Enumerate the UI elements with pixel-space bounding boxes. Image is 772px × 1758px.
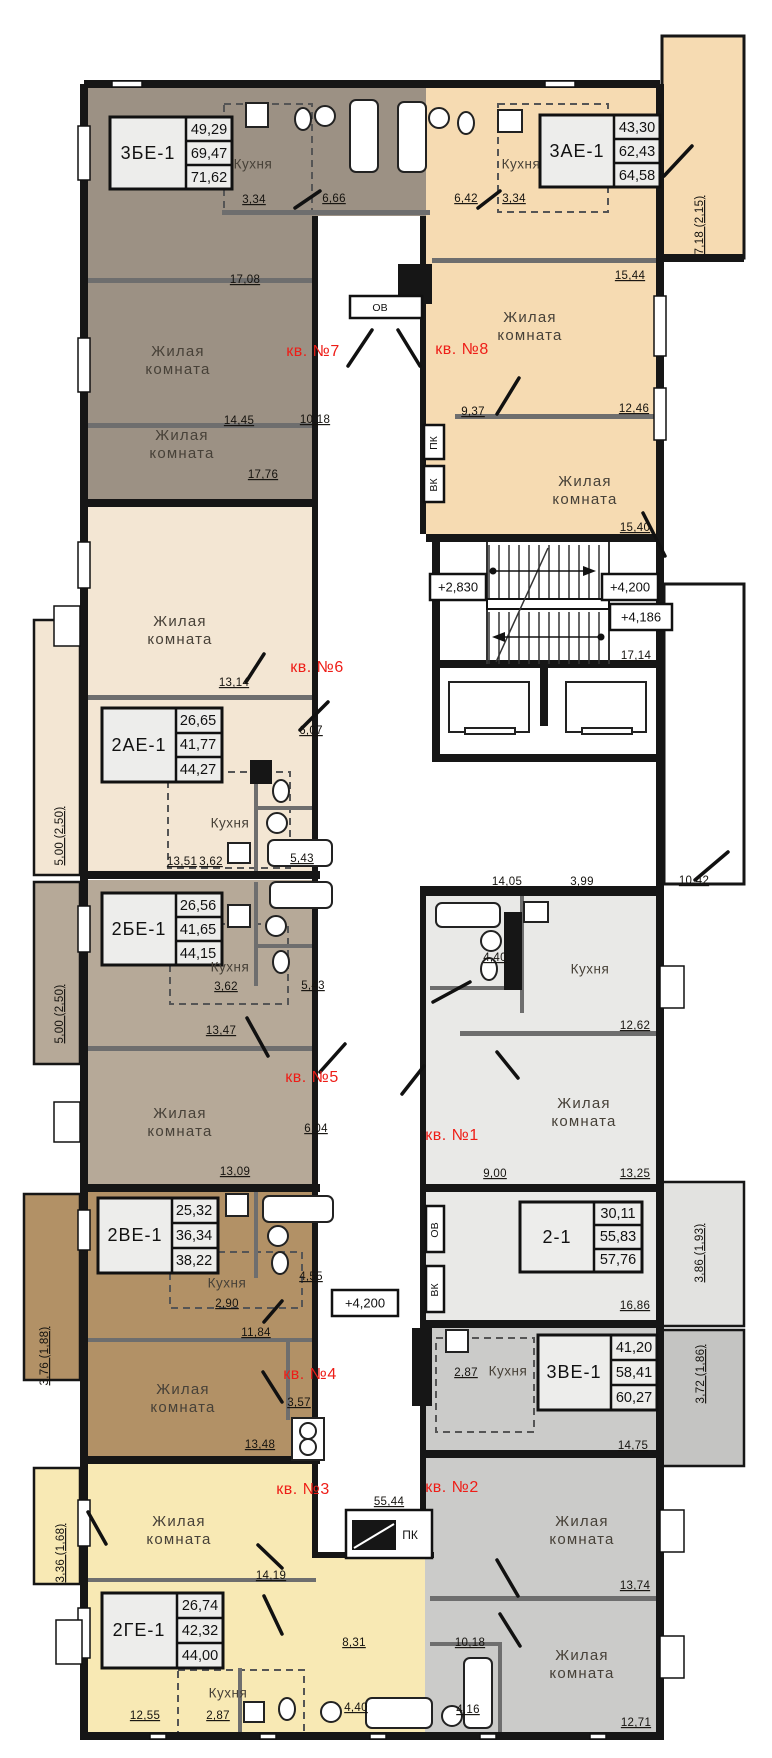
dim: 9,00	[483, 1168, 507, 1180]
room-label-living: комната	[146, 1531, 211, 1548]
unit-area-living: 30,11	[600, 1206, 635, 1222]
room-label-living: комната	[552, 491, 617, 508]
bathtub	[366, 1698, 432, 1728]
floor-plan: 3БЕ-1 49,29 69,47 71,62 3АЕ-1 43,30 62,4…	[0, 0, 772, 1758]
dim: 12,62	[620, 1020, 650, 1032]
elevator-cabin-right	[566, 682, 646, 732]
unit-area-usable: 41,77	[180, 737, 216, 753]
sink	[481, 931, 501, 951]
shaft-ov-top: ОВ	[372, 302, 387, 314]
unit-area-usable: 69,47	[191, 146, 227, 162]
room-label-living: Жилая	[153, 1105, 206, 1122]
dim: 8,31	[342, 1637, 366, 1649]
room-label-living: Жилая	[153, 613, 206, 630]
kitchen-sink	[228, 843, 250, 863]
unit-area-usable: 58,41	[616, 1365, 652, 1381]
kitchen-sink	[246, 103, 268, 127]
dim: 17,08	[230, 274, 260, 286]
dim: 2,90	[215, 1298, 239, 1310]
room-label-kitchen: Кухня	[211, 960, 250, 975]
dim: 10,18	[455, 1637, 485, 1649]
dim: 3,57	[287, 1397, 311, 1409]
dim: 12,55	[130, 1710, 160, 1722]
room-label-living: комната	[145, 361, 210, 378]
bathtub	[270, 882, 332, 908]
bathtub	[436, 903, 500, 927]
room-label-living: Жилая	[151, 343, 204, 360]
window-bay	[54, 606, 80, 646]
elevation-stair-low: +2,830	[438, 579, 478, 594]
dim: 13,74	[620, 1580, 651, 1592]
unit-area-living: 26,65	[180, 713, 216, 729]
toilet	[272, 1252, 288, 1274]
window	[654, 296, 666, 356]
unit-code: 2ГЕ-1	[113, 1620, 166, 1640]
sink	[321, 1702, 341, 1722]
unit-area-total: 44,27	[180, 762, 216, 778]
unit-area-total: 60,27	[616, 1390, 652, 1406]
window	[112, 81, 142, 87]
unit-code: 2БЕ-1	[112, 919, 167, 939]
unit-area-living: 26,56	[180, 898, 216, 914]
dim: 17,76	[248, 469, 278, 481]
flat-number-2: кв. №2	[425, 1479, 478, 1496]
floor-plan-drawing: 3БЕ-1 49,29 69,47 71,62 3АЕ-1 43,30 62,4…	[0, 0, 772, 1758]
flat-number-1: кв. №1	[425, 1127, 478, 1144]
dim: 2,87	[206, 1710, 230, 1722]
dim: 13,47	[206, 1025, 236, 1037]
unit-code: 3ВЕ-1	[546, 1362, 601, 1382]
unit-box-2-1: 2-1 30,11 55,83 57,76	[520, 1202, 642, 1272]
sink	[268, 1226, 288, 1246]
dim: 3,62	[214, 981, 238, 993]
room-label-living: комната	[551, 1113, 616, 1130]
dim: 4,55	[299, 1271, 323, 1283]
room-label-kitchen: Кухня	[211, 816, 250, 831]
room-label-kitchen: Кухня	[209, 1686, 248, 1701]
bathtub	[464, 1658, 492, 1728]
room-label-living: Жилая	[557, 1095, 610, 1112]
dim: 6,04	[304, 1123, 328, 1135]
unit-area-living: 43,30	[619, 120, 655, 136]
unit-box-2ve-1: 2ВЕ-1 25,32 36,34 38,22	[98, 1198, 218, 1273]
window	[78, 542, 90, 588]
dim: 13,14	[219, 677, 250, 689]
dim: 5,43	[290, 853, 314, 865]
dim: 3,36 (1,68)	[55, 1524, 67, 1583]
elevation-stair-high: +4,200	[610, 579, 650, 594]
kitchen-sink	[446, 1330, 468, 1352]
window	[78, 1210, 90, 1250]
flat-number-5: кв. №5	[285, 1069, 338, 1086]
window	[78, 338, 90, 392]
dim: 14,05	[492, 876, 522, 888]
dim: 13,25	[620, 1168, 650, 1180]
room-label-living: Жилая	[155, 427, 208, 444]
shaft-pk: ПК	[428, 435, 440, 450]
bathtub	[398, 102, 426, 172]
toilet	[273, 951, 289, 973]
window-bay	[660, 966, 684, 1008]
room-label-kitchen: Кухня	[571, 962, 610, 977]
flat-number-4: кв. №4	[283, 1366, 336, 1383]
dim: 13,48	[245, 1439, 275, 1451]
room-label-living: Жилая	[156, 1381, 209, 1398]
kitchen-sink	[498, 110, 522, 132]
bathtub	[263, 1196, 333, 1222]
dim: 12,71	[621, 1717, 651, 1729]
unit-code: 2-1	[542, 1227, 571, 1247]
dim: 3,72 (1,86)	[695, 1345, 707, 1404]
room-label-living: Жилая	[503, 309, 556, 326]
toilet	[295, 108, 311, 130]
room-label-living: Жилая	[555, 1647, 608, 1664]
dim: 6,42	[454, 193, 478, 205]
dim: 4,40	[344, 1702, 368, 1714]
dim: 13,09	[220, 1166, 250, 1178]
unit-box-2be-1: 2БЕ-1 26,56 41,65 44,15	[102, 893, 222, 965]
room-label-kitchen: Кухня	[489, 1364, 528, 1379]
window	[78, 126, 90, 180]
unit-area-total: 38,22	[176, 1253, 212, 1269]
room-label-living: комната	[149, 445, 214, 462]
unit-area-living: 41,20	[616, 1340, 652, 1356]
unit-box-3be-1: 3БЕ-1 49,29 69,47 71,62	[110, 117, 232, 189]
dim: 5,00 (2,50)	[54, 807, 66, 866]
unit-code: 3АЕ-1	[549, 141, 604, 161]
window-bay	[56, 1620, 82, 1664]
unit-box-2ge-1: 2ГЕ-1 26,74 42,32 44,00	[102, 1593, 223, 1668]
dim: 2,87	[454, 1367, 478, 1379]
window-bay	[660, 1510, 684, 1552]
staircase	[487, 542, 609, 664]
dim: 3,76 (1,88)	[39, 1327, 51, 1386]
unit-area-living: 49,29	[191, 122, 227, 138]
window-bay	[660, 1636, 684, 1678]
dim: 6,66	[322, 193, 346, 205]
dim: 14,45	[224, 415, 254, 427]
dim: 14,19	[256, 1570, 286, 1582]
dim: 15,40	[620, 522, 650, 534]
room-label-living: комната	[549, 1665, 614, 1682]
sink	[266, 916, 286, 936]
dim: 13,51	[167, 856, 197, 868]
room-label-living: Жилая	[152, 1513, 205, 1530]
room-label-living: комната	[147, 1123, 212, 1140]
stair-rail	[487, 599, 609, 609]
unit-code: 2ВЕ-1	[107, 1225, 162, 1245]
dim: 11,84	[241, 1327, 271, 1339]
unit-box-3ve-1: 3ВЕ-1 41,20 58,41 60,27	[538, 1335, 657, 1410]
sink	[315, 106, 335, 126]
flat-number-8: кв. №8	[435, 341, 488, 358]
shaft-vk: ВК	[428, 478, 440, 492]
kitchen-sink	[228, 905, 250, 927]
room-label-living: Жилая	[558, 473, 611, 490]
kitchen-sink	[244, 1702, 264, 1722]
dim: 4,40	[483, 952, 507, 964]
shaft-pk-bottom: ПК	[402, 1528, 418, 1542]
window	[545, 81, 575, 87]
toilet	[458, 112, 474, 134]
unit-area-total: 57,76	[600, 1252, 636, 1268]
dim: 14,75	[618, 1440, 648, 1452]
unit-area-total: 71,62	[191, 170, 227, 186]
room-label-living: комната	[150, 1399, 215, 1416]
unit-area-living: 25,32	[176, 1203, 212, 1219]
dim: 3,99	[570, 876, 594, 888]
unit-area-total: 44,00	[182, 1648, 218, 1664]
sink	[267, 813, 287, 833]
window-bay	[54, 1102, 80, 1142]
balcony-apartment-4	[24, 1194, 80, 1380]
dim: 15,44	[615, 270, 646, 282]
entrance-vestibule	[664, 584, 744, 884]
room-label-living: Жилая	[555, 1513, 608, 1530]
toilet	[279, 1698, 295, 1720]
unit-area-usable: 62,43	[619, 144, 655, 160]
bathtub	[350, 100, 378, 172]
shaft-vk-mid: ВК	[429, 1283, 441, 1297]
elevator-door-left	[465, 728, 515, 734]
dim: 55,44	[374, 1496, 405, 1508]
dim: 3,34	[502, 193, 526, 205]
elevation-entrance: +4,186	[621, 609, 661, 624]
unit-area-usable: 42,32	[182, 1623, 218, 1639]
dim: 3,34	[242, 194, 266, 206]
sink	[429, 108, 449, 128]
kitchen-sink	[226, 1194, 248, 1216]
dim: 3,86 (1,93)	[694, 1224, 706, 1283]
window	[78, 906, 90, 952]
dim: 17,14	[621, 650, 652, 662]
dim: 10,42	[679, 875, 709, 887]
unit-code: 3БЕ-1	[121, 143, 176, 163]
flat-number-3: кв. №3	[276, 1481, 329, 1498]
window	[78, 1500, 90, 1546]
unit-area-usable: 36,34	[176, 1228, 212, 1244]
unit-area-living: 26,74	[182, 1598, 218, 1614]
dim: 9,37	[461, 406, 485, 418]
unit-area-usable: 55,83	[600, 1229, 636, 1245]
kitchen-sink	[524, 902, 548, 922]
room-label-living: комната	[147, 631, 212, 648]
room-label-kitchen: Кухня	[502, 157, 541, 172]
unit-box-3ae-1: 3АЕ-1 43,30 62,43 64,58	[540, 115, 660, 187]
elevator-door-right	[582, 728, 632, 734]
unit-code: 2АЕ-1	[111, 735, 166, 755]
room-label-living: комната	[497, 327, 562, 344]
unit-area-usable: 41,65	[180, 922, 216, 938]
unit-area-total: 64,58	[619, 168, 655, 184]
dim: 4,16	[456, 1704, 480, 1716]
dim: 6,07	[299, 725, 323, 737]
dim: 3,62	[199, 856, 223, 868]
flat-number-6: кв. №6	[290, 659, 343, 676]
dim: 10,18	[300, 414, 330, 426]
elevation-corridor: +4,200	[345, 1295, 385, 1310]
room-label-kitchen: Кухня	[208, 1276, 247, 1291]
unit-box-2ae-1: 2АЕ-1 26,65 41,77 44,27	[102, 708, 222, 782]
room-label-kitchen: Кухня	[234, 157, 273, 172]
dim: 5,00 (2,50)	[54, 985, 66, 1044]
room-label-living: комната	[549, 1531, 614, 1548]
dim: 7,18 (2,15)	[694, 196, 706, 255]
window	[654, 388, 666, 440]
dim: 12,46	[619, 403, 649, 415]
toilet	[273, 780, 289, 802]
elevator-cabin-left	[449, 682, 529, 732]
dim: 16,86	[620, 1300, 650, 1312]
dim: 5,43	[301, 980, 325, 992]
flat-number-7: кв. №7	[286, 343, 339, 360]
shaft-ov-mid: ОВ	[429, 1222, 441, 1237]
